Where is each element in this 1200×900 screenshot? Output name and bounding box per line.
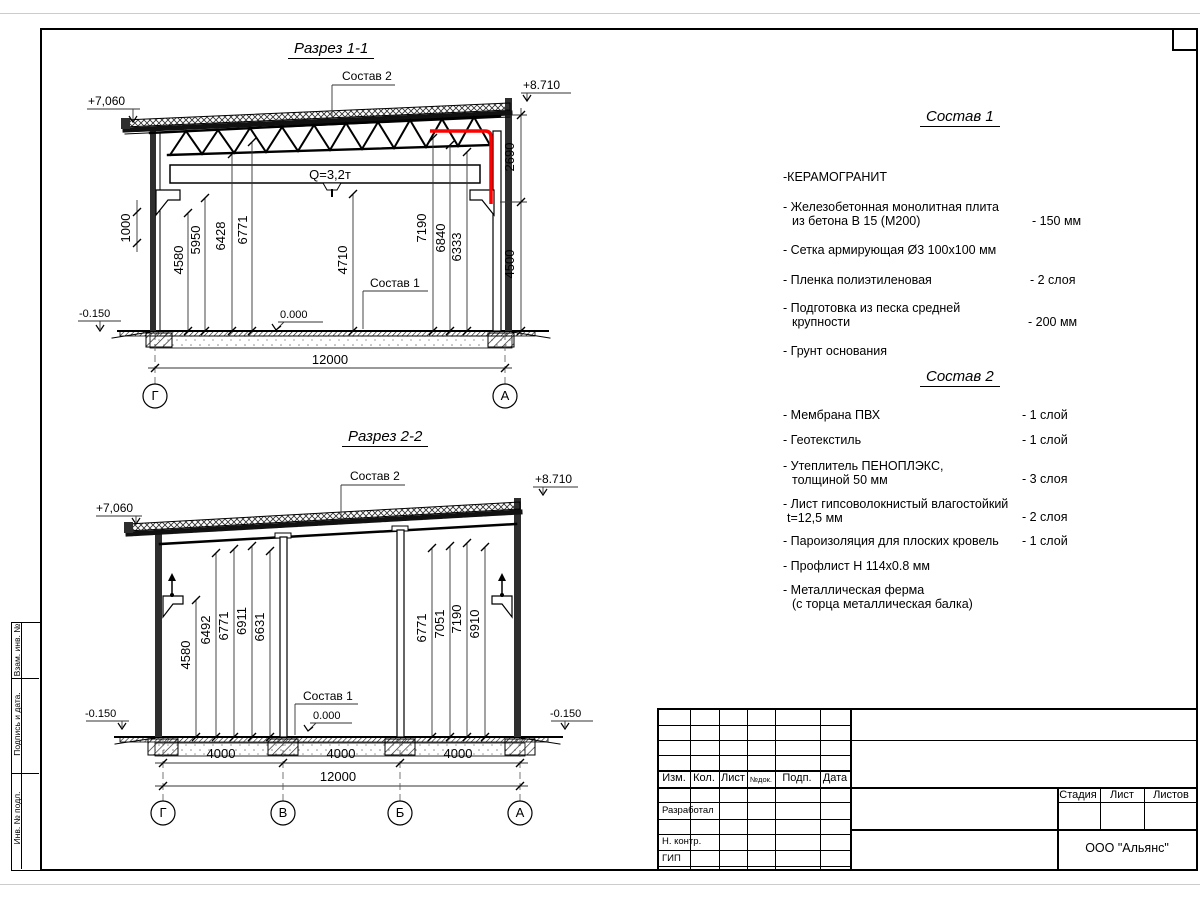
dim-height: 6771 [235,216,250,245]
list-item: - Железобетонная монолитная плита из бет… [783,200,999,228]
roof-end-cap [124,522,133,533]
anchor-arrow-left [168,573,176,581]
column-right [493,131,501,331]
list-item: - Геотекстиль [783,433,861,447]
strip-label-inv: Инв. № подл. [12,792,22,845]
leader-sostav2: Состав 2 [342,69,392,83]
titleblock-line [659,770,850,772]
corbel-left [156,190,180,215]
item-value: - 200 мм [1028,315,1077,329]
list-item: -КЕРАМОГРАНИТ [783,170,887,184]
section1-structure [112,98,550,348]
stage-header: Стадия [1059,789,1097,801]
sostav2-heading: Состав 2 [920,368,1000,387]
page-edge-top [0,13,1200,14]
column-Б [397,530,404,737]
axis-letter: А [501,388,510,403]
elevation-right: +8.710 [535,472,572,486]
sostav1-heading: Состав 1 [920,108,1000,127]
item-text: (с торца металлическая балка) [783,597,973,611]
leader-sostav1: Состав 1 [370,276,420,290]
item-text: - Пароизоляция для плоских кровель [783,534,999,548]
dim-height: 7051 [432,610,447,639]
list-item: - Пароизоляция для плоских кровель [783,534,999,548]
list-item: - Металлическая ферма (с торца металличе… [783,583,973,611]
axis-letter: Г [151,388,158,403]
dim-height: 6910 [467,610,482,639]
level-minus-left: -0.150 [85,708,116,720]
titleblock-line [850,740,1198,741]
strip-line [12,773,39,774]
titleblock-line [659,834,850,835]
wall-right-parapet [505,98,512,331]
item-value: - 1 слой [1022,433,1068,447]
item-text: - Геотекстиль [783,433,861,447]
titleblock-line [1100,787,1101,829]
dim-1000: 1000 [118,214,133,243]
titleblock-line [747,710,748,869]
elevation-left: +7,060 [88,94,125,108]
column-B [280,537,287,737]
titleblock-line [820,710,821,869]
wall-left [155,534,162,737]
item-text: - Профлист Н 114х0.8 мм [783,559,930,573]
titleblock-line [850,710,852,869]
titleblock-line [659,787,850,789]
dim-bay: 4000 [444,746,473,761]
list-item: - Профлист Н 114х0.8 мм [783,559,930,573]
item-text: - Железобетонная монолитная плита [783,200,999,214]
corner-stamp-box [1172,28,1198,51]
item-text: - Утеплитель ПЕНОПЛЭКС, [783,459,943,473]
level-zero: 0.000 [280,309,308,321]
dim-height: 6840 [433,224,448,253]
titleblock-line [850,829,1198,831]
titleblock-line [659,755,850,756]
titleblock-line [1144,787,1145,829]
strip-label-vzam: Взам. инв. № [12,624,22,677]
item-text: - Пленка полиэтиленовая [783,273,932,287]
dim-height: 6771 [216,612,231,641]
titleblock-line [659,819,850,820]
dim-height: 6631 [252,613,267,642]
list-item: - Сетка армирующая Ø3 100х100 мм [783,243,996,257]
list-item: - Мембрана ПВХ [783,408,880,422]
col-kol: Кол. [693,772,715,784]
col-list: Лист [721,772,745,784]
titleblock-line [659,850,850,851]
wall-left [150,128,156,331]
crane-capacity: Q=3,2т [309,167,351,182]
dim-height: 6492 [198,616,213,645]
item-value: - 2 слоя [1022,510,1067,524]
item-text: толщиной 50 мм [783,473,943,487]
row-developed: Разработал [662,805,714,816]
item-value: - 150 мм [1032,214,1081,228]
dim-span: 12000 [320,769,356,784]
wall-right [514,498,521,737]
item-text: - Сетка армирующая Ø3 100х100 мм [783,243,996,257]
dim-height: 7190 [449,605,464,634]
sheets-header: Листов [1153,789,1189,801]
dim-bay: 4000 [327,746,356,761]
item-text: - Подготовка из песка средней [783,301,960,315]
titleblock-line [1057,802,1198,803]
item-value: - 2 слоя [1030,273,1075,287]
dim-height: 4580 [171,246,186,275]
axis-letter: В [279,805,288,820]
list-item: - Подготовка из песка средней крупности [783,301,960,329]
footing-right [488,333,514,347]
titleblock-line [659,802,850,803]
item-value: - 3 слоя [1022,472,1067,486]
item-text: из бетона В 15 (М200) [783,214,999,228]
footing-left [146,333,172,347]
drawing-sheet: Разрез 1-1 Разрез 2-2 [0,0,1200,900]
item-value: - 1 слой [1022,534,1068,548]
titleblock-line [659,866,850,867]
anchor-base-right [500,593,504,597]
level-minus: -0.150 [79,308,110,320]
strip-line [12,678,39,679]
sheet-header: Лист [1110,789,1134,801]
list-item: - Грунт основания [783,344,887,358]
leader-sostav2: Состав 2 [350,469,400,483]
dim-bay: 4000 [207,746,236,761]
item-text: - Лист гипсоволокнистый влагостойкий [783,497,1008,511]
level-zero: 0.000 [313,710,341,722]
elevation-left: +7,060 [96,501,133,515]
section-1-drawing: Состав 2 Состав 1 +7,060 +8.710 Q=3,2т 1… [78,38,578,430]
titleblock-line [719,710,720,869]
dim-height: 4580 [178,641,193,670]
axis-letter: Г [159,805,166,820]
col-podp: Подп. [782,772,811,784]
crane-trolley [323,183,341,190]
item-value: - 1 слой [1022,408,1068,422]
company-name: ООО "Альянс" [1085,841,1169,855]
row-ncontr: Н. контр. [662,836,701,847]
dim-2690: 2690 [502,143,517,172]
dim-4500: 4500 [502,250,517,279]
strip-label-podpis: Подпись и дата. [12,692,22,756]
anchor-arrow-right [498,573,506,581]
corbel-left [163,596,183,617]
titleblock-line [659,740,850,741]
item-text: - Грунт основания [783,344,887,358]
dim-height: 6333 [449,233,464,262]
col-data: Дата [823,772,847,784]
dim-span: 12000 [312,352,348,367]
titleblock-line [850,787,1198,789]
list-item: - Лист гипсоволокнистый влагостойкий t=1… [783,497,1008,525]
anchor-base-left [170,593,174,597]
dim-height: 4710 [335,246,350,275]
dim-height: 6771 [414,614,429,643]
row-gip: ГИП [662,853,681,864]
item-text: -КЕРАМОГРАНИТ [783,170,887,184]
item-text: крупности [783,315,960,329]
level-minus-right: -0.150 [550,708,581,720]
col-ndok: №док. [750,775,772,784]
roof-end-cap [121,118,130,129]
item-text: - Металлическая ферма [783,583,973,597]
floor-slab [150,336,512,348]
title-block: Изм. Кол. Лист №док. Подп. Дата Разработ… [657,708,1198,871]
col-izm: Изм. [662,772,686,784]
dim-height: 6911 [234,607,249,635]
dim-height: 5950 [188,226,203,255]
dim-height: 6428 [213,222,228,251]
list-item: - Пленка полиэтиленовая [783,273,932,287]
leader-sostav1: Состав 1 [303,689,353,703]
titleblock-line [659,725,850,726]
page-edge-bottom [0,884,1200,885]
item-text: - Мембрана ПВХ [783,408,880,422]
axis-letter: А [516,805,525,820]
section-2-drawing: Состав 2 Состав 1 +7,060 +8.710 4580 649… [78,425,598,835]
corbel-right [492,596,512,617]
titleblock-line [775,710,776,869]
dim-height: 7190 [414,214,429,243]
list-item: - Утеплитель ПЕНОПЛЭКС, толщиной 50 мм [783,459,943,487]
axis-letter: Б [396,805,405,820]
elevation-right: +8.710 [523,78,560,92]
item-text: t=12,5 мм [783,511,1008,525]
